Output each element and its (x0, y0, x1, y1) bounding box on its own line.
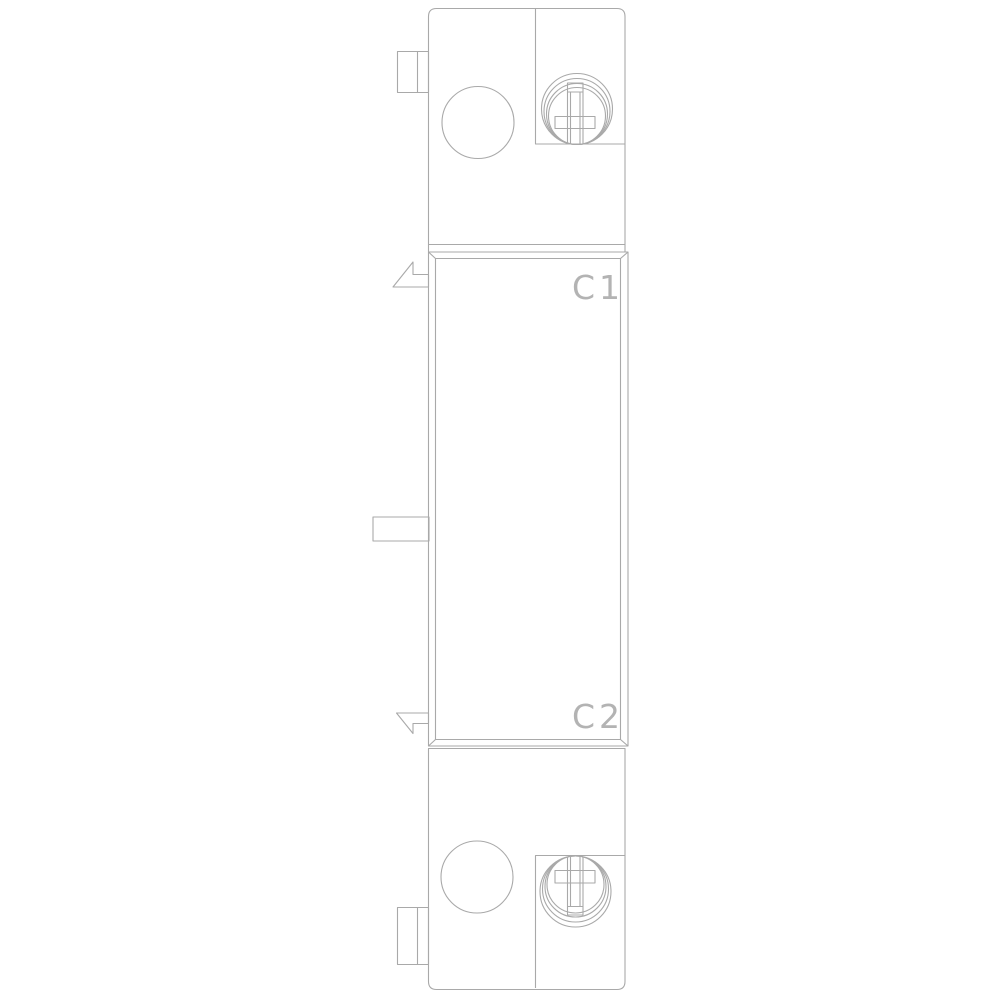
bottom-mounting-tab (398, 908, 429, 965)
technical-drawing: C1 C2 (0, 0, 1000, 1000)
top-screw-slot (555, 117, 595, 129)
direction-arrow-bottom (397, 713, 429, 734)
bottom-screw-clamp-tab (568, 907, 584, 916)
terminal-label-c2: C2 (572, 697, 624, 736)
frame-inner-rect (436, 259, 621, 740)
frame-outer-rect (429, 252, 629, 746)
bottom-screw-terminal (540, 856, 611, 927)
bottom-screw-slot (555, 871, 595, 884)
top-tab-outline (398, 52, 429, 93)
side-latch-tab (373, 517, 429, 541)
top-screw-clamp-rails (568, 92, 584, 144)
terminal-label-c1: C1 (572, 268, 624, 307)
bottom-screw-clamp-rails (568, 857, 584, 907)
drawing-canvas: C1 C2 (0, 0, 1000, 1000)
bottom-terminal-block (429, 749, 626, 990)
top-mounting-tab (398, 52, 429, 93)
bottom-tab-outline (398, 908, 429, 965)
body-frame (429, 252, 629, 746)
component-line-art (373, 9, 628, 990)
top-screw-terminal (542, 74, 613, 145)
frame-corner-bevels (429, 252, 629, 746)
bottom-block-outline (429, 749, 626, 990)
direction-arrow-top (393, 262, 429, 287)
bottom-post-circle (441, 841, 513, 913)
top-terminal-block (429, 9, 626, 253)
top-block-side-connectors (429, 245, 626, 253)
top-post-circle (442, 87, 514, 159)
bottom-screw-head-circle (547, 856, 604, 913)
